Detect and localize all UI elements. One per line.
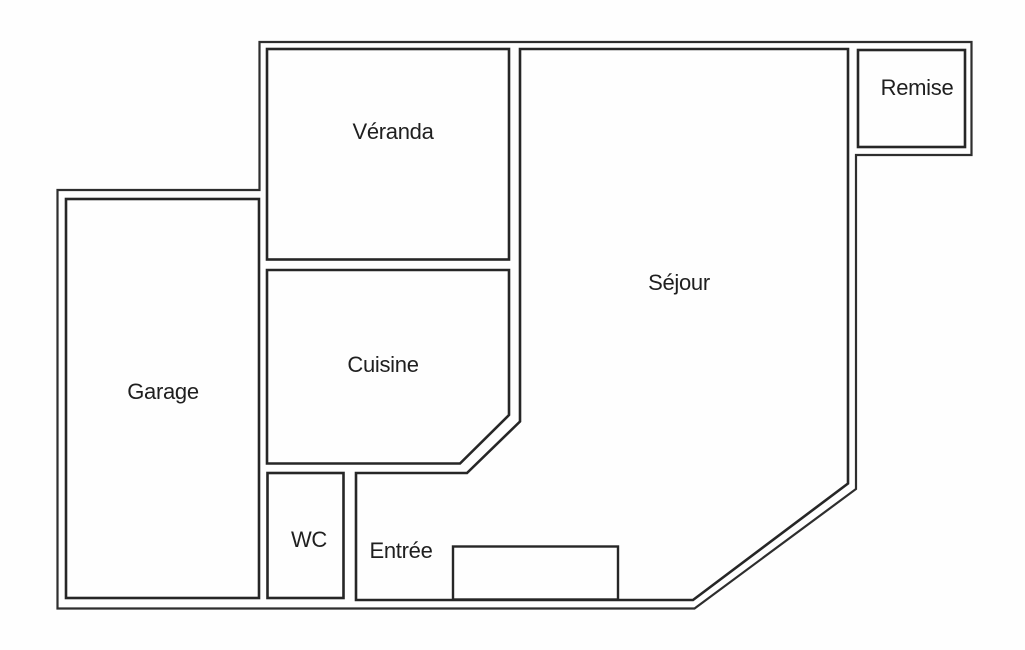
room-label-entree: Entrée (369, 538, 432, 564)
room-label-garage: Garage (127, 379, 199, 405)
entree-feature-rectangle (453, 547, 618, 600)
room-label-wc: WC (291, 527, 327, 553)
room-label-remise: Remise (881, 75, 954, 101)
room-veranda-walls (267, 49, 509, 260)
floor-plan: Véranda Remise Séjour Garage Cuisine WC … (0, 0, 1025, 650)
room-label-sejour: Séjour (648, 270, 710, 296)
room-label-veranda: Véranda (352, 119, 433, 145)
floor-plan-drawing (0, 0, 1025, 650)
building-outer-wall (58, 42, 972, 609)
room-label-cuisine: Cuisine (347, 352, 418, 378)
